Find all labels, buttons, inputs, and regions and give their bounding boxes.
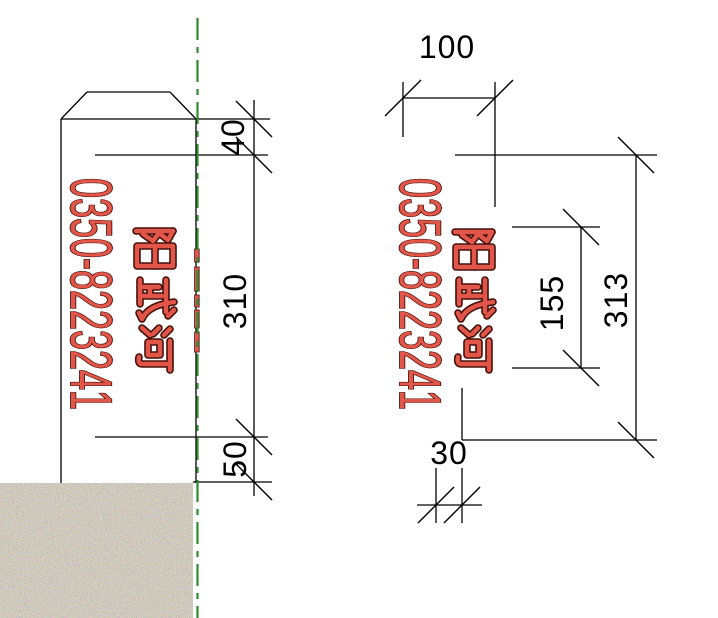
cad-drawing-canvas: 40 310 50 0350-8223241 100 [0,0,718,618]
river-name-right [455,232,493,370]
post-chamfer-left [61,92,87,119]
right-view-section: 100 313 155 30 0350-8223241 [385,29,657,523]
dim-label-100: 100 [419,29,475,65]
dim-label-50: 50 [217,440,253,478]
ground-granite-hatch [0,483,193,618]
cad-drawing: 40 310 50 0350-8223241 100 [0,0,718,618]
dim-label-155: 155 [534,275,570,331]
dim-label-30: 30 [430,435,468,471]
phone-number-text-right: 0350-8223241 [387,178,452,410]
phone-number-text-left: 0350-8223241 [58,178,123,410]
left-view-post-elevation: 40 310 50 0350-8223241 [0,18,272,618]
dim-label-310: 310 [217,273,253,329]
river-name-left [136,231,174,370]
dim-label-313: 313 [598,272,634,328]
post-chamfer-right [170,92,196,119]
dim-label-40: 40 [215,118,251,156]
